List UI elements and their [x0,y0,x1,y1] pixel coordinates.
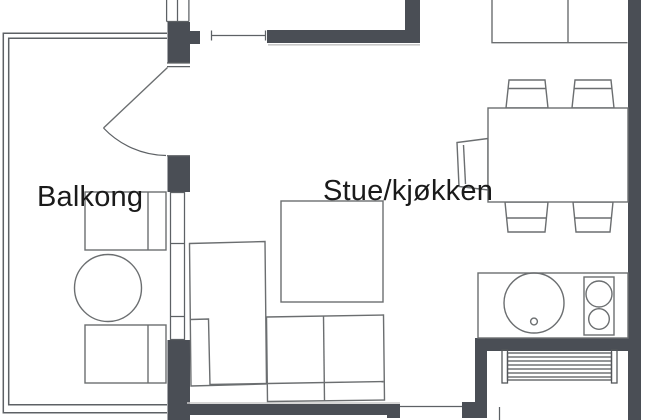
chair-outline [506,80,548,108]
door-frame-lines [167,63,190,156]
dining-chair-bottom-left [505,202,548,232]
sofa-cushion-divider [324,316,325,401]
living-area [190,201,385,402]
top-vertical-window [167,0,189,22]
sofa-sectional [190,242,385,402]
dining-chair-top-left [506,80,548,108]
radiator-cap-right [612,350,618,383]
wall-bottom-step [387,404,400,418]
wall-kitchen-bottom [475,338,628,351]
top-window [211,31,266,41]
balcony-round-table [75,255,142,322]
sofa-chaise [190,242,267,387]
balcony-window [171,193,185,340]
chair-outline [573,202,613,232]
upper-cabinets [492,0,628,43]
kitchen-counter-area [478,273,628,338]
room-label-balkong: Balkong [37,181,143,213]
wall-top [267,0,420,43]
wall-divider-middle [168,156,191,192]
dining-chair-bottom-right [573,202,613,232]
floor-plan: Balkong Stue/kjøkken [0,0,650,420]
door-leaf [104,68,168,129]
dining-set [457,80,628,232]
wall-kitchen-foot [462,402,487,418]
wall-right [628,0,641,420]
chair-outline [85,325,166,383]
balcony-door [104,63,191,156]
wall-kitchen-vertical [475,351,487,402]
room-label-stue-kjokken: Stue/kjøkken [323,175,493,207]
wall-divider-lower [168,340,191,420]
door-swing-arc [104,128,167,156]
wall-door-stub [189,31,200,44]
dining-chair-top-right [572,80,614,108]
wall-bottom [187,404,400,415]
sofa-seat-section [267,315,385,402]
radiator-fins [508,357,612,377]
area-rug [281,201,383,302]
chair-outline [572,80,614,108]
chair-outline [505,202,548,232]
wall-divider-upper [168,22,191,63]
balcony-chair-lower [85,325,166,383]
radiator-cap-left [502,350,508,383]
radiator [502,350,617,383]
balcony-furniture [75,192,167,383]
dining-table [488,108,628,202]
